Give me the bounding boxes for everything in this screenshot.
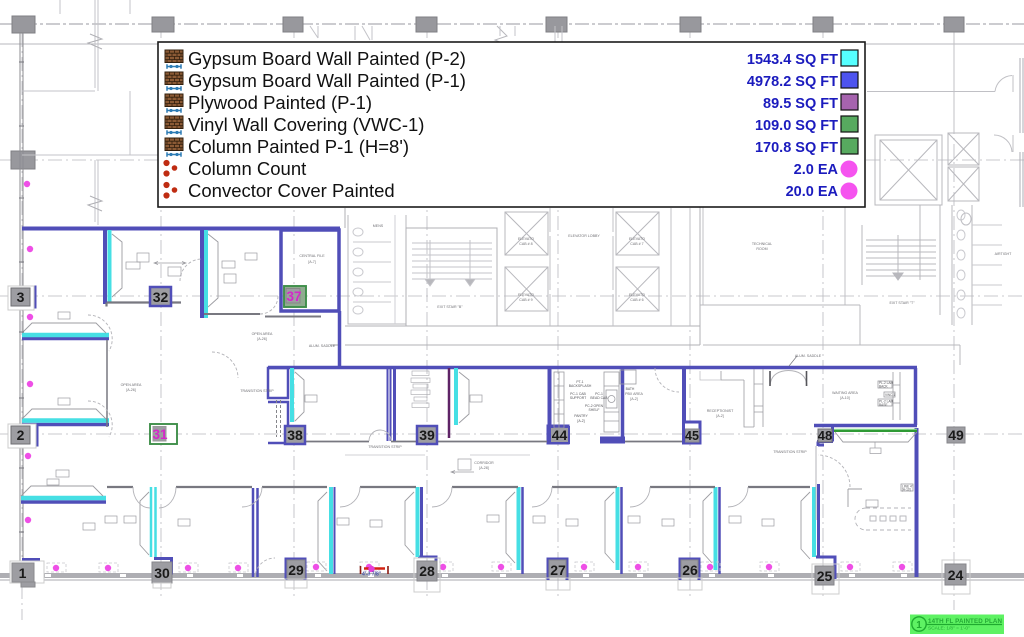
svg-text:48: 48 xyxy=(818,428,832,443)
svg-text:WAITING AREA: WAITING AREA xyxy=(832,391,858,395)
svg-text:44: 44 xyxy=(552,427,568,443)
svg-text:[A-2]: [A-2] xyxy=(577,419,584,423)
svg-text:BACK: BACK xyxy=(879,385,889,389)
svg-text:ROOM: ROOM xyxy=(756,247,767,251)
svg-text:37: 37 xyxy=(286,289,301,304)
svg-text:89.5 SQ FT: 89.5 SQ FT xyxy=(763,96,838,112)
svg-text:Column Painted P-1 (H=8'): Column Painted P-1 (H=8') xyxy=(188,136,409,157)
svg-text:ALUM. SADDLE: ALUM. SADDLE xyxy=(795,354,822,358)
svg-text:ALUM. SADDLE: ALUM. SADDLE xyxy=(309,344,336,348)
svg-text:1543.4 SQ FT: 1543.4 SQ FT xyxy=(747,52,838,68)
svg-text:SHELF: SHELF xyxy=(589,408,600,412)
svg-text:2: 2 xyxy=(17,427,25,443)
svg-text:ELEVATO: ELEVATO xyxy=(518,237,534,241)
svg-text:26: 26 xyxy=(682,562,698,578)
svg-text:EXIT STAIR "B": EXIT STAIR "B" xyxy=(437,305,463,309)
svg-text:EXIT STAIR "T": EXIT STAIR "T" xyxy=(890,301,916,305)
svg-text:20.0 EA: 20.0 EA xyxy=(786,184,839,200)
svg-text:Gypsum Board Wall Painted (P-1: Gypsum Board Wall Painted (P-1) xyxy=(188,70,466,91)
svg-text:CENTRAL FILE: CENTRAL FILE xyxy=(299,254,325,258)
svg-text:[A-2]: [A-2] xyxy=(716,414,724,418)
svg-text:ELEVATO: ELEVATO xyxy=(629,293,645,297)
svg-text:[A-28]: [A-28] xyxy=(479,466,489,470)
svg-text:[A-10]: [A-10] xyxy=(902,488,911,492)
svg-text:4'-3 7/8": 4'-3 7/8" xyxy=(362,572,382,578)
svg-text:PANTRY: PANTRY xyxy=(574,414,588,418)
svg-text:BEAD CAB: BEAD CAB xyxy=(590,396,608,400)
svg-text:2.0 EA: 2.0 EA xyxy=(794,162,839,178)
svg-text:4978.2 SQ FT: 4978.2 SQ FT xyxy=(747,74,838,90)
svg-text:CAB # 8: CAB # 8 xyxy=(519,242,532,246)
svg-text:170.8 SQ FT: 170.8 SQ FT xyxy=(755,140,838,156)
svg-text:TRANSITION STRIP: TRANSITION STRIP xyxy=(368,445,402,449)
svg-text:TECHNICAL: TECHNICAL xyxy=(752,242,772,246)
svg-text:[A-26]: [A-26] xyxy=(257,337,267,341)
svg-text:1: 1 xyxy=(916,620,922,631)
svg-text:29: 29 xyxy=(288,562,304,578)
svg-text:OPEN AREA: OPEN AREA xyxy=(252,332,273,336)
svg-text:OPEN AREA: OPEN AREA xyxy=(121,383,142,387)
svg-text:[A-7]: [A-7] xyxy=(308,260,316,264)
svg-text:RECEPTIONIST: RECEPTIONIST xyxy=(707,409,734,413)
svg-text:SUPPORT: SUPPORT xyxy=(570,396,586,400)
svg-text:CORRIDOR: CORRIDOR xyxy=(474,461,494,465)
svg-text:[A-10]: [A-10] xyxy=(840,396,850,400)
svg-text:ELEVATOR LOBBY: ELEVATOR LOBBY xyxy=(568,234,600,238)
svg-text:AIRTIGHT: AIRTIGHT xyxy=(995,252,1013,256)
svg-text:14TH FL PAINTED PLAN: 14TH FL PAINTED PLAN xyxy=(928,618,1003,625)
svg-text:CAB # 9: CAB # 9 xyxy=(519,298,532,302)
svg-text:31: 31 xyxy=(152,427,168,442)
svg-text:PBX AREA: PBX AREA xyxy=(625,392,643,396)
svg-text:Convector Cover Painted: Convector Cover Painted xyxy=(188,180,395,201)
svg-text:39: 39 xyxy=(419,427,435,443)
svg-text:109.0 SQ FT: 109.0 SQ FT xyxy=(755,118,838,134)
svg-text:BASE: BASE xyxy=(879,403,888,407)
svg-text:Vinyl Wall Covering (VWC-1): Vinyl Wall Covering (VWC-1) xyxy=(188,114,424,135)
svg-text:BACKSPLASH: BACKSPLASH xyxy=(569,384,592,388)
svg-text:TRANSITION STRIP: TRANSITION STRIP xyxy=(240,389,274,393)
svg-text:25: 25 xyxy=(817,568,833,584)
svg-text:MENS: MENS xyxy=(373,224,384,228)
svg-text:SCALE: 1/8" = 1'-0": SCALE: 1/8" = 1'-0" xyxy=(928,626,970,632)
svg-text:[A-26]: [A-26] xyxy=(126,388,136,392)
svg-text:TRANSITION STRIP: TRANSITION STRIP xyxy=(773,450,807,454)
svg-text:VWC-1: VWC-1 xyxy=(885,393,895,397)
svg-text:1: 1 xyxy=(19,565,27,581)
svg-text:CAB # 6: CAB # 6 xyxy=(630,298,643,302)
svg-text:49: 49 xyxy=(948,427,964,443)
svg-text:BATH: BATH xyxy=(626,387,635,391)
svg-text:32: 32 xyxy=(153,289,169,305)
svg-text:27: 27 xyxy=(550,562,566,578)
svg-text:24: 24 xyxy=(948,567,964,583)
svg-text:[A-2]: [A-2] xyxy=(630,397,638,401)
svg-text:Plywood Painted (P-1): Plywood Painted (P-1) xyxy=(188,92,372,113)
svg-text:38: 38 xyxy=(287,427,303,443)
svg-text:30: 30 xyxy=(154,565,170,581)
svg-text:CAB # 7: CAB # 7 xyxy=(630,242,643,246)
svg-text:ELEVATO: ELEVATO xyxy=(518,293,534,297)
svg-text:Gypsum Board Wall Painted (P-2: Gypsum Board Wall Painted (P-2) xyxy=(188,48,466,69)
svg-text:Column Count: Column Count xyxy=(188,158,306,179)
svg-text:28: 28 xyxy=(419,563,435,579)
svg-text:ELEVATO: ELEVATO xyxy=(629,237,645,241)
svg-text:45: 45 xyxy=(685,429,699,443)
svg-text:3: 3 xyxy=(17,289,25,305)
